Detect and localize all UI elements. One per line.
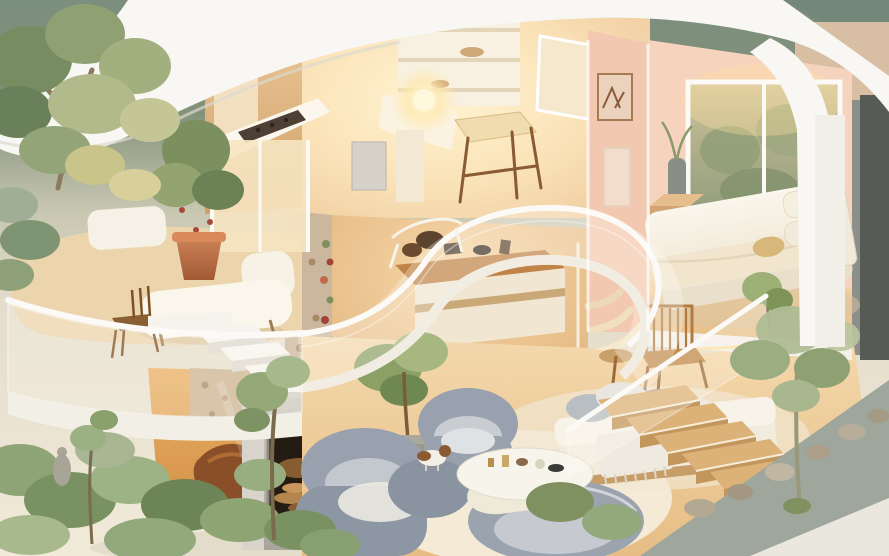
framed-print [604, 148, 630, 206]
terracotta-pot [176, 238, 222, 280]
table-item [502, 455, 509, 467]
desk-pedestal [396, 130, 424, 202]
table-item [535, 459, 545, 469]
golden-shrub [109, 169, 161, 201]
slate-panel [860, 95, 889, 360]
table-item [548, 464, 564, 472]
scene-canvas [0, 0, 889, 556]
glowing-lamp [413, 89, 435, 111]
table-item [516, 458, 528, 466]
table-item [488, 458, 494, 467]
built-in-bench [87, 205, 168, 250]
appliance [352, 142, 386, 190]
shrub [582, 504, 642, 540]
shrub [0, 220, 60, 260]
roof-edge-column [815, 115, 845, 347]
isometric-house-render [0, 0, 889, 556]
